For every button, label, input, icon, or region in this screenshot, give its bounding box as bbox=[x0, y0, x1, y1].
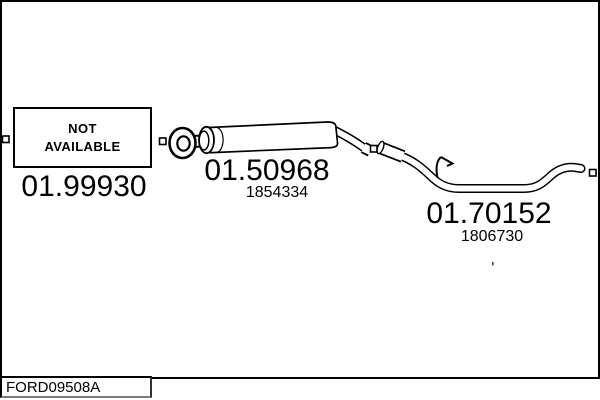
not-available-box: NOT AVAILABLE bbox=[13, 107, 152, 168]
exhaust-diagram-canvas: NOT AVAILABLE 01.99930 01.50968 1854334 … bbox=[0, 0, 600, 400]
connector-square-gasket bbox=[160, 138, 167, 145]
connector-square-left-edge bbox=[3, 136, 10, 143]
connector-square-mid bbox=[371, 146, 378, 153]
tail-flare-fill bbox=[364, 148, 371, 152]
not-available-line1: NOT bbox=[68, 120, 97, 138]
oe-reference-rear-pipe: 1806730 bbox=[461, 229, 523, 245]
connector-square-right-edge bbox=[590, 170, 597, 177]
silencer-tail-pipe-fill bbox=[334, 130, 368, 150]
rear-pipe-drawing bbox=[376, 141, 581, 189]
oe-reference-centre-silencer: 1854334 bbox=[246, 185, 308, 201]
stray-mark bbox=[492, 262, 494, 265]
part-number-front-section: 01.99930 bbox=[21, 172, 146, 202]
part-number-centre-silencer: 01.50968 bbox=[204, 156, 329, 186]
silencer-drawing bbox=[170, 122, 371, 158]
rear-pipe-fill bbox=[381, 149, 581, 189]
catalog-code-label: FORD09508A bbox=[6, 380, 100, 395]
part-number-rear-pipe: 01.70152 bbox=[426, 199, 551, 229]
gasket-ring-hole bbox=[177, 136, 189, 150]
silencer-end-cap-inner bbox=[199, 131, 209, 150]
rear-pipe-outline bbox=[381, 149, 581, 189]
hanger-hook-icon bbox=[437, 157, 441, 178]
catalog-code-box: FORD09508A bbox=[0, 376, 152, 398]
hanger-hook-tip bbox=[441, 157, 453, 166]
not-available-line2: AVAILABLE bbox=[44, 138, 120, 156]
